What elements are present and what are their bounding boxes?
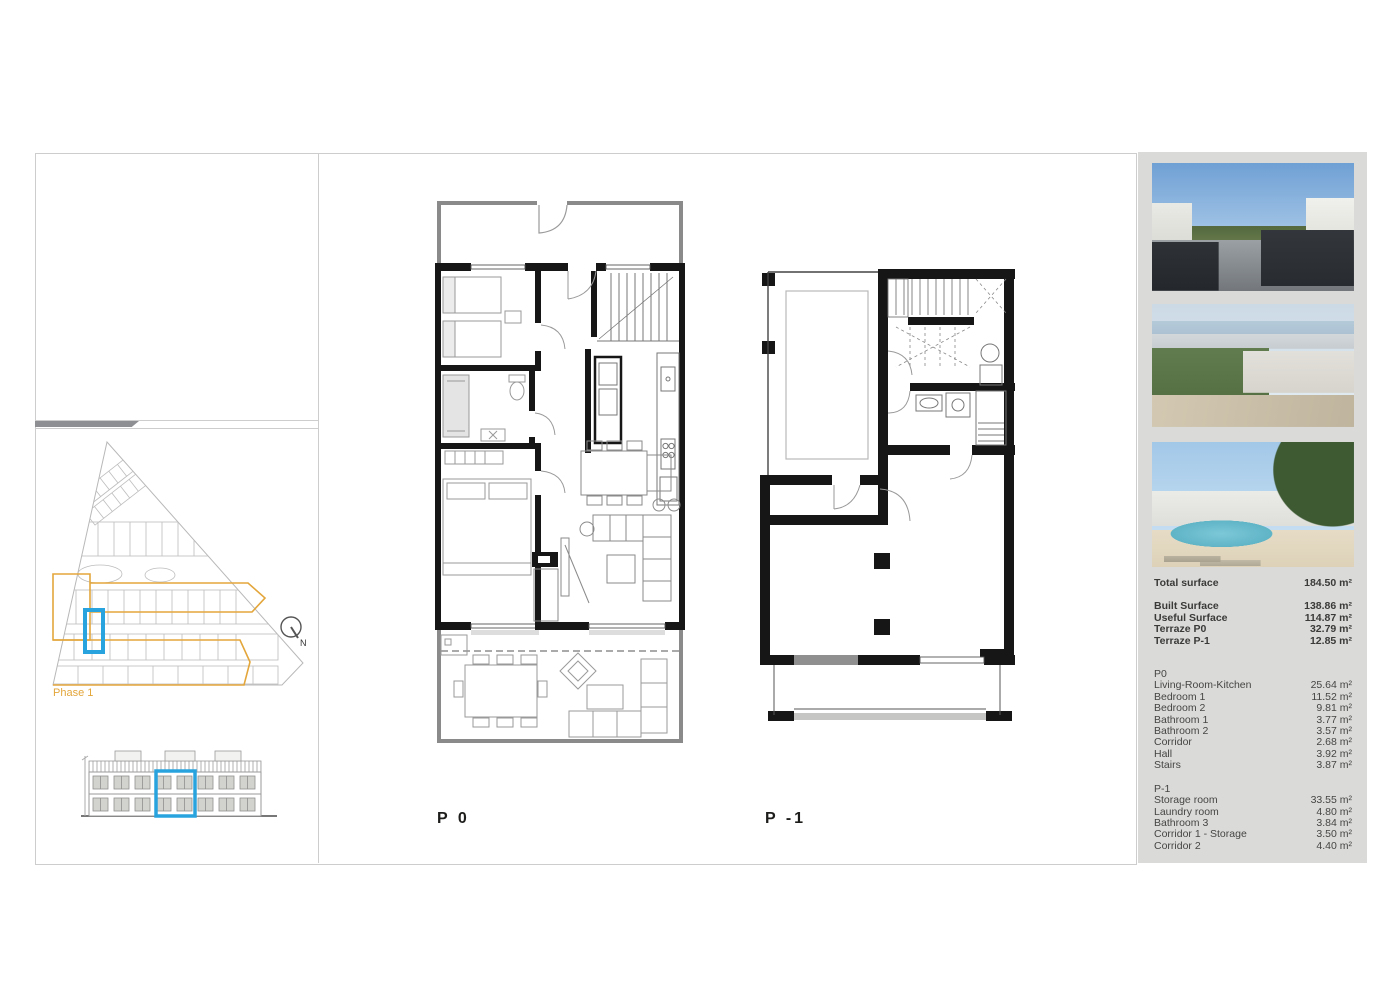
p1-fixtures bbox=[916, 344, 1006, 445]
p0-terrace-walls bbox=[437, 630, 683, 743]
p0-plan-label: P 0 bbox=[437, 810, 470, 828]
surface-table: Total surface 184.50 m² Built Surface 13… bbox=[1154, 578, 1352, 852]
room-label: Bedroom 2 bbox=[1154, 703, 1205, 714]
room-label: Corridor 2 bbox=[1154, 841, 1201, 852]
p1-floor-plan bbox=[760, 263, 1015, 733]
left-box-divider-top bbox=[35, 420, 319, 421]
site-boundary bbox=[53, 442, 303, 685]
info-sidebar: Total surface 184.50 m² Built Surface 13… bbox=[1138, 152, 1367, 863]
room-value: 9.81 m² bbox=[1316, 703, 1352, 714]
selected-unit-highlight bbox=[85, 610, 103, 652]
p1-walls bbox=[760, 269, 1015, 721]
p0-kitchen bbox=[595, 353, 679, 505]
brochure-page: N Phase 1 bbox=[0, 0, 1400, 990]
p1-gray-wall-section bbox=[794, 655, 858, 665]
p1-plan-label: P -1 bbox=[765, 810, 806, 828]
surface-label: Terraze P-1 bbox=[1154, 636, 1210, 647]
room-value: 4.40 m² bbox=[1316, 841, 1352, 852]
surface-label: Terraze P0 bbox=[1154, 624, 1206, 635]
photo-terrace-view bbox=[1152, 163, 1354, 291]
room-value: 3.50 m² bbox=[1316, 829, 1352, 840]
elevation-drawing bbox=[75, 738, 285, 833]
p1-stairs bbox=[888, 279, 968, 317]
p0-floor-plan bbox=[435, 193, 685, 748]
p1-door-arcs bbox=[834, 351, 972, 521]
p0-living-furniture bbox=[534, 515, 671, 621]
p0-bedroom1-furniture bbox=[443, 277, 521, 357]
table-row: Terraze P0 32.79 m² bbox=[1154, 624, 1352, 635]
sill-left bbox=[471, 630, 539, 635]
p1-patio bbox=[768, 272, 878, 475]
phase-label: Phase 1 bbox=[53, 687, 93, 699]
table-row: Terraze P-1 12.85 m² bbox=[1154, 636, 1352, 647]
north-compass-icon: N bbox=[281, 617, 307, 648]
surface-value: 32.79 m² bbox=[1310, 624, 1352, 635]
surface-value: 12.85 m² bbox=[1310, 636, 1352, 647]
surface-value: 184.50 m² bbox=[1304, 578, 1352, 589]
north-label: N bbox=[300, 638, 307, 648]
photo-residences-pool bbox=[1152, 442, 1354, 567]
table-row: Corridor 2 4.40 m² bbox=[1154, 841, 1352, 852]
room-label: Stairs bbox=[1154, 760, 1181, 771]
divider-accent-bar bbox=[35, 421, 139, 427]
p0-bathroom1-fixtures bbox=[443, 375, 525, 441]
surface-label: Total surface bbox=[1154, 578, 1219, 589]
p0-bedroom2-furniture bbox=[443, 451, 531, 575]
p1-basement-window bbox=[920, 657, 984, 663]
p0-terrace-furniture bbox=[441, 635, 667, 737]
p0-stairs bbox=[597, 273, 679, 341]
room-value: 3.87 m² bbox=[1316, 760, 1352, 771]
table-row: Stairs 3.87 m² bbox=[1154, 760, 1352, 771]
p0-entry-terrace-walls bbox=[437, 201, 683, 265]
column-divider bbox=[318, 153, 319, 863]
table-row: Total surface 184.50 m² bbox=[1154, 578, 1352, 589]
room-value: 33.55 m² bbox=[1311, 795, 1352, 806]
wall-niche bbox=[538, 556, 550, 563]
p1-terrace-strip bbox=[794, 713, 986, 720]
photo-aerial-coastline bbox=[1152, 304, 1354, 427]
table-row: Bedroom 2 9.81 m² bbox=[1154, 703, 1352, 714]
sill-right bbox=[589, 630, 665, 635]
room-label: Storage room bbox=[1154, 795, 1218, 806]
table-row: Storage room 33.55 m² bbox=[1154, 795, 1352, 806]
p1-terrace bbox=[774, 665, 1000, 715]
room-label: Corridor 1 - Storage bbox=[1154, 829, 1247, 840]
site-plan: N Phase 1 bbox=[38, 438, 310, 710]
left-box-divider-bottom bbox=[35, 428, 319, 429]
table-row: Corridor 1 - Storage 3.50 m² bbox=[1154, 829, 1352, 840]
entry-gate-door-arc bbox=[539, 205, 567, 233]
